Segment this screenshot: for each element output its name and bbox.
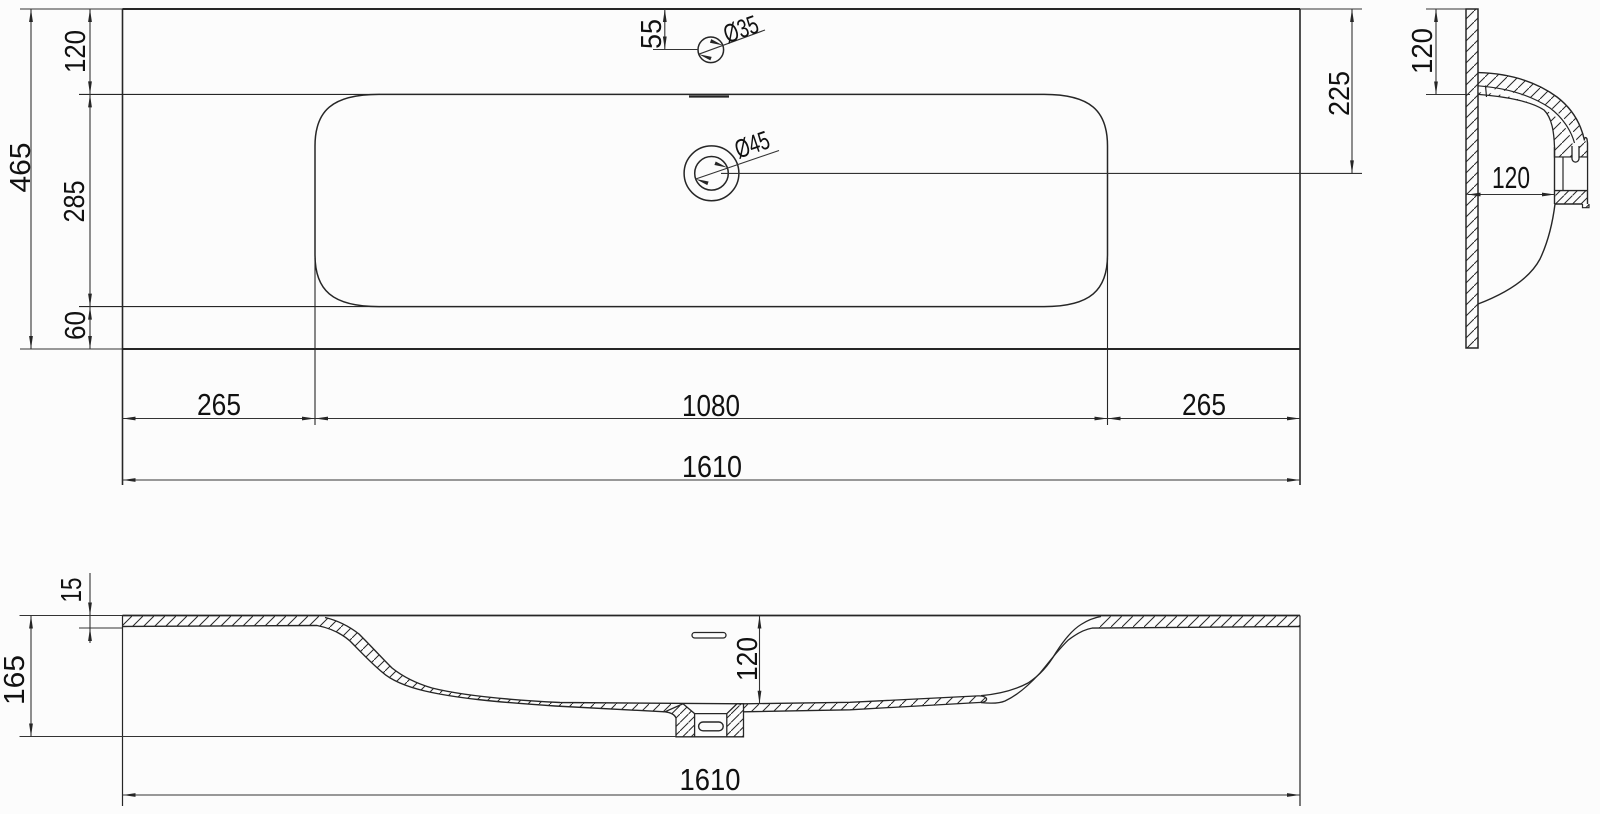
svg-text:285: 285 <box>59 181 91 223</box>
svg-text:120: 120 <box>1492 160 1530 195</box>
svg-text:225: 225 <box>1324 71 1356 116</box>
svg-text:120: 120 <box>60 30 92 73</box>
svg-text:465: 465 <box>5 143 37 193</box>
svg-text:55: 55 <box>636 19 668 49</box>
svg-text:1610: 1610 <box>682 449 742 484</box>
svg-text:265: 265 <box>1182 387 1226 422</box>
svg-text:265: 265 <box>197 387 241 422</box>
svg-text:120: 120 <box>1407 28 1439 74</box>
svg-text:1610: 1610 <box>680 762 741 797</box>
svg-text:120: 120 <box>732 637 764 681</box>
svg-text:15: 15 <box>56 578 88 603</box>
svg-text:60: 60 <box>60 311 92 340</box>
svg-text:Ø35: Ø35 <box>719 9 762 49</box>
svg-text:1080: 1080 <box>682 388 740 423</box>
svg-text:165: 165 <box>0 655 31 705</box>
svg-text:Ø45: Ø45 <box>731 125 774 165</box>
